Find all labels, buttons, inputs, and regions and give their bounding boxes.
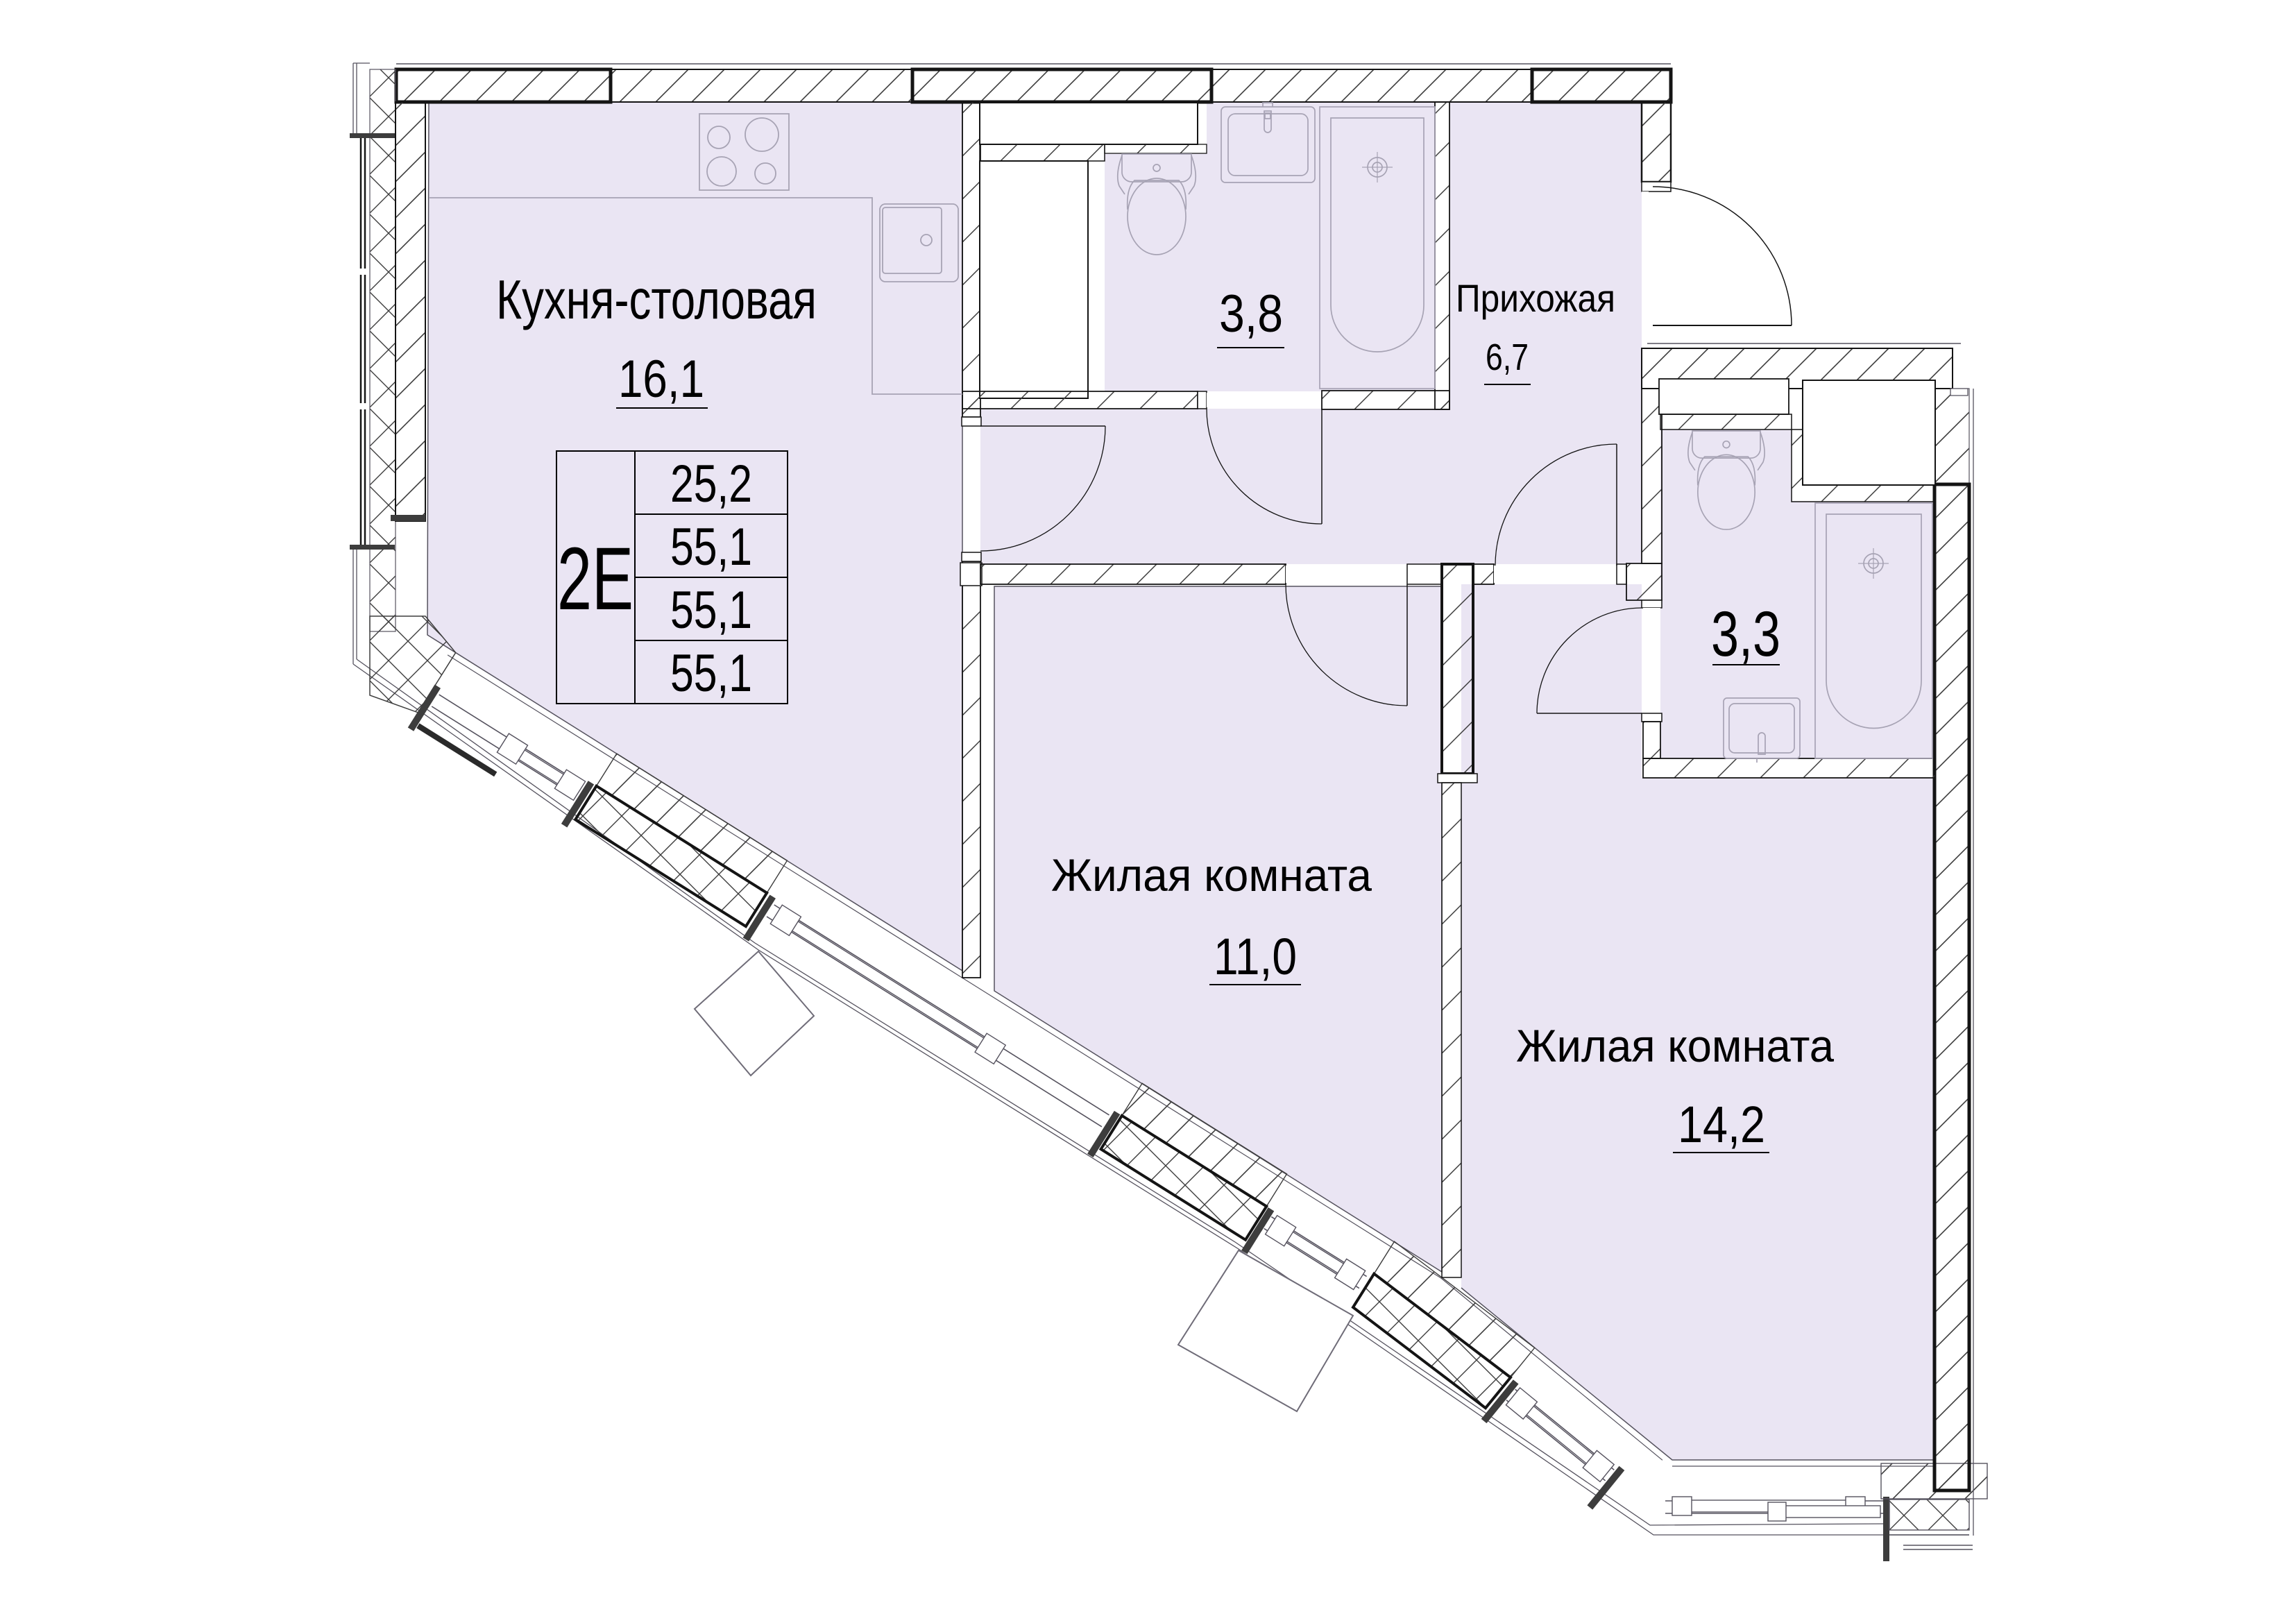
- svg-text:3,3: 3,3: [1711, 599, 1780, 670]
- svg-text:Кухня-столовая: Кухня-столовая: [496, 269, 817, 330]
- svg-text:Прихожая: Прихожая: [1456, 276, 1615, 320]
- svg-text:55,1: 55,1: [670, 644, 752, 703]
- svg-text:14,2: 14,2: [1678, 1096, 1765, 1153]
- svg-text:Жилая комната: Жилая комната: [1516, 1020, 1834, 1071]
- svg-text:3,8: 3,8: [1219, 284, 1283, 343]
- svg-text:6,7: 6,7: [1486, 337, 1529, 378]
- svg-text:25,2: 25,2: [670, 454, 752, 513]
- svg-text:55,1: 55,1: [670, 518, 752, 577]
- svg-text:55,1: 55,1: [670, 581, 752, 640]
- svg-text:16,1: 16,1: [618, 350, 704, 409]
- svg-text:Жилая комната: Жилая комната: [1051, 849, 1372, 901]
- svg-text:11,0: 11,0: [1214, 928, 1297, 985]
- svg-text:2Е: 2Е: [557, 529, 633, 629]
